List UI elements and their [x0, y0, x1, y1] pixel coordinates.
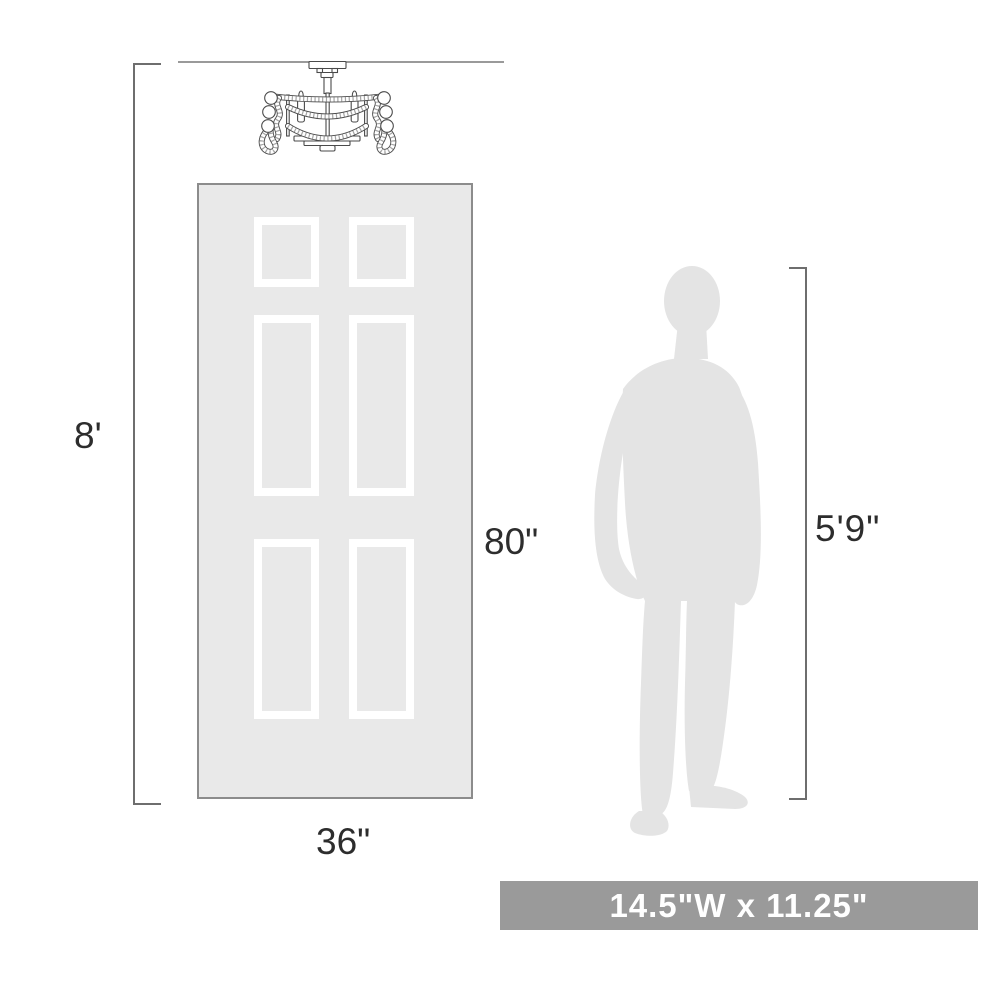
- light-fixture-illustration: [258, 58, 406, 158]
- product-scale-diagram: 8': [0, 0, 1000, 1000]
- door-panel: [349, 217, 414, 287]
- door-panel: [254, 315, 319, 496]
- door-panel: [254, 217, 319, 287]
- person-height-label: 5'9": [815, 510, 880, 547]
- door-panel: [349, 539, 414, 719]
- door-illustration: [197, 183, 473, 799]
- size-banner-text: 14.5"W x 11.25": [609, 887, 868, 924]
- person-height-bracket: [789, 267, 807, 800]
- door-width-label: 36": [316, 823, 370, 860]
- door-panel: [254, 539, 319, 719]
- ceiling-height-bracket: [133, 63, 161, 805]
- ceiling-height-label: 8': [74, 417, 102, 454]
- person-silhouette: [585, 263, 780, 838]
- door-height-label: 80": [484, 523, 538, 560]
- size-banner: 14.5"W x 11.25": [500, 881, 978, 930]
- door-panel: [349, 315, 414, 496]
